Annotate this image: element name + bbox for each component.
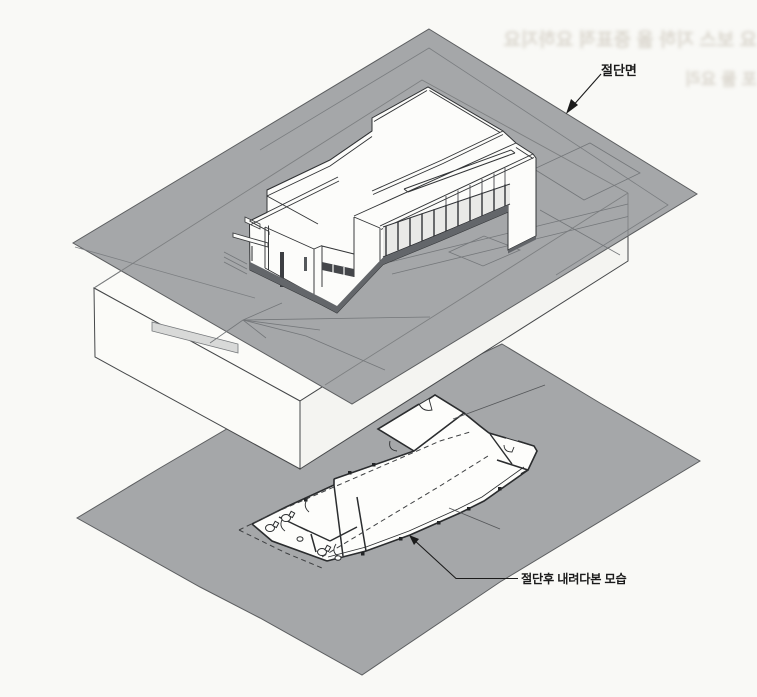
svg-text:포 둘 요리: 포 둘 요리 [685,70,757,89]
svg-text:요 보스 지하 올 증표적 요하지요: 요 보스 지하 올 증표적 요하지요 [503,29,757,51]
svg-text:절단후 내려다본 모습: 절단후 내려다본 모습 [521,571,627,586]
svg-text:절단면: 절단면 [601,63,637,78]
